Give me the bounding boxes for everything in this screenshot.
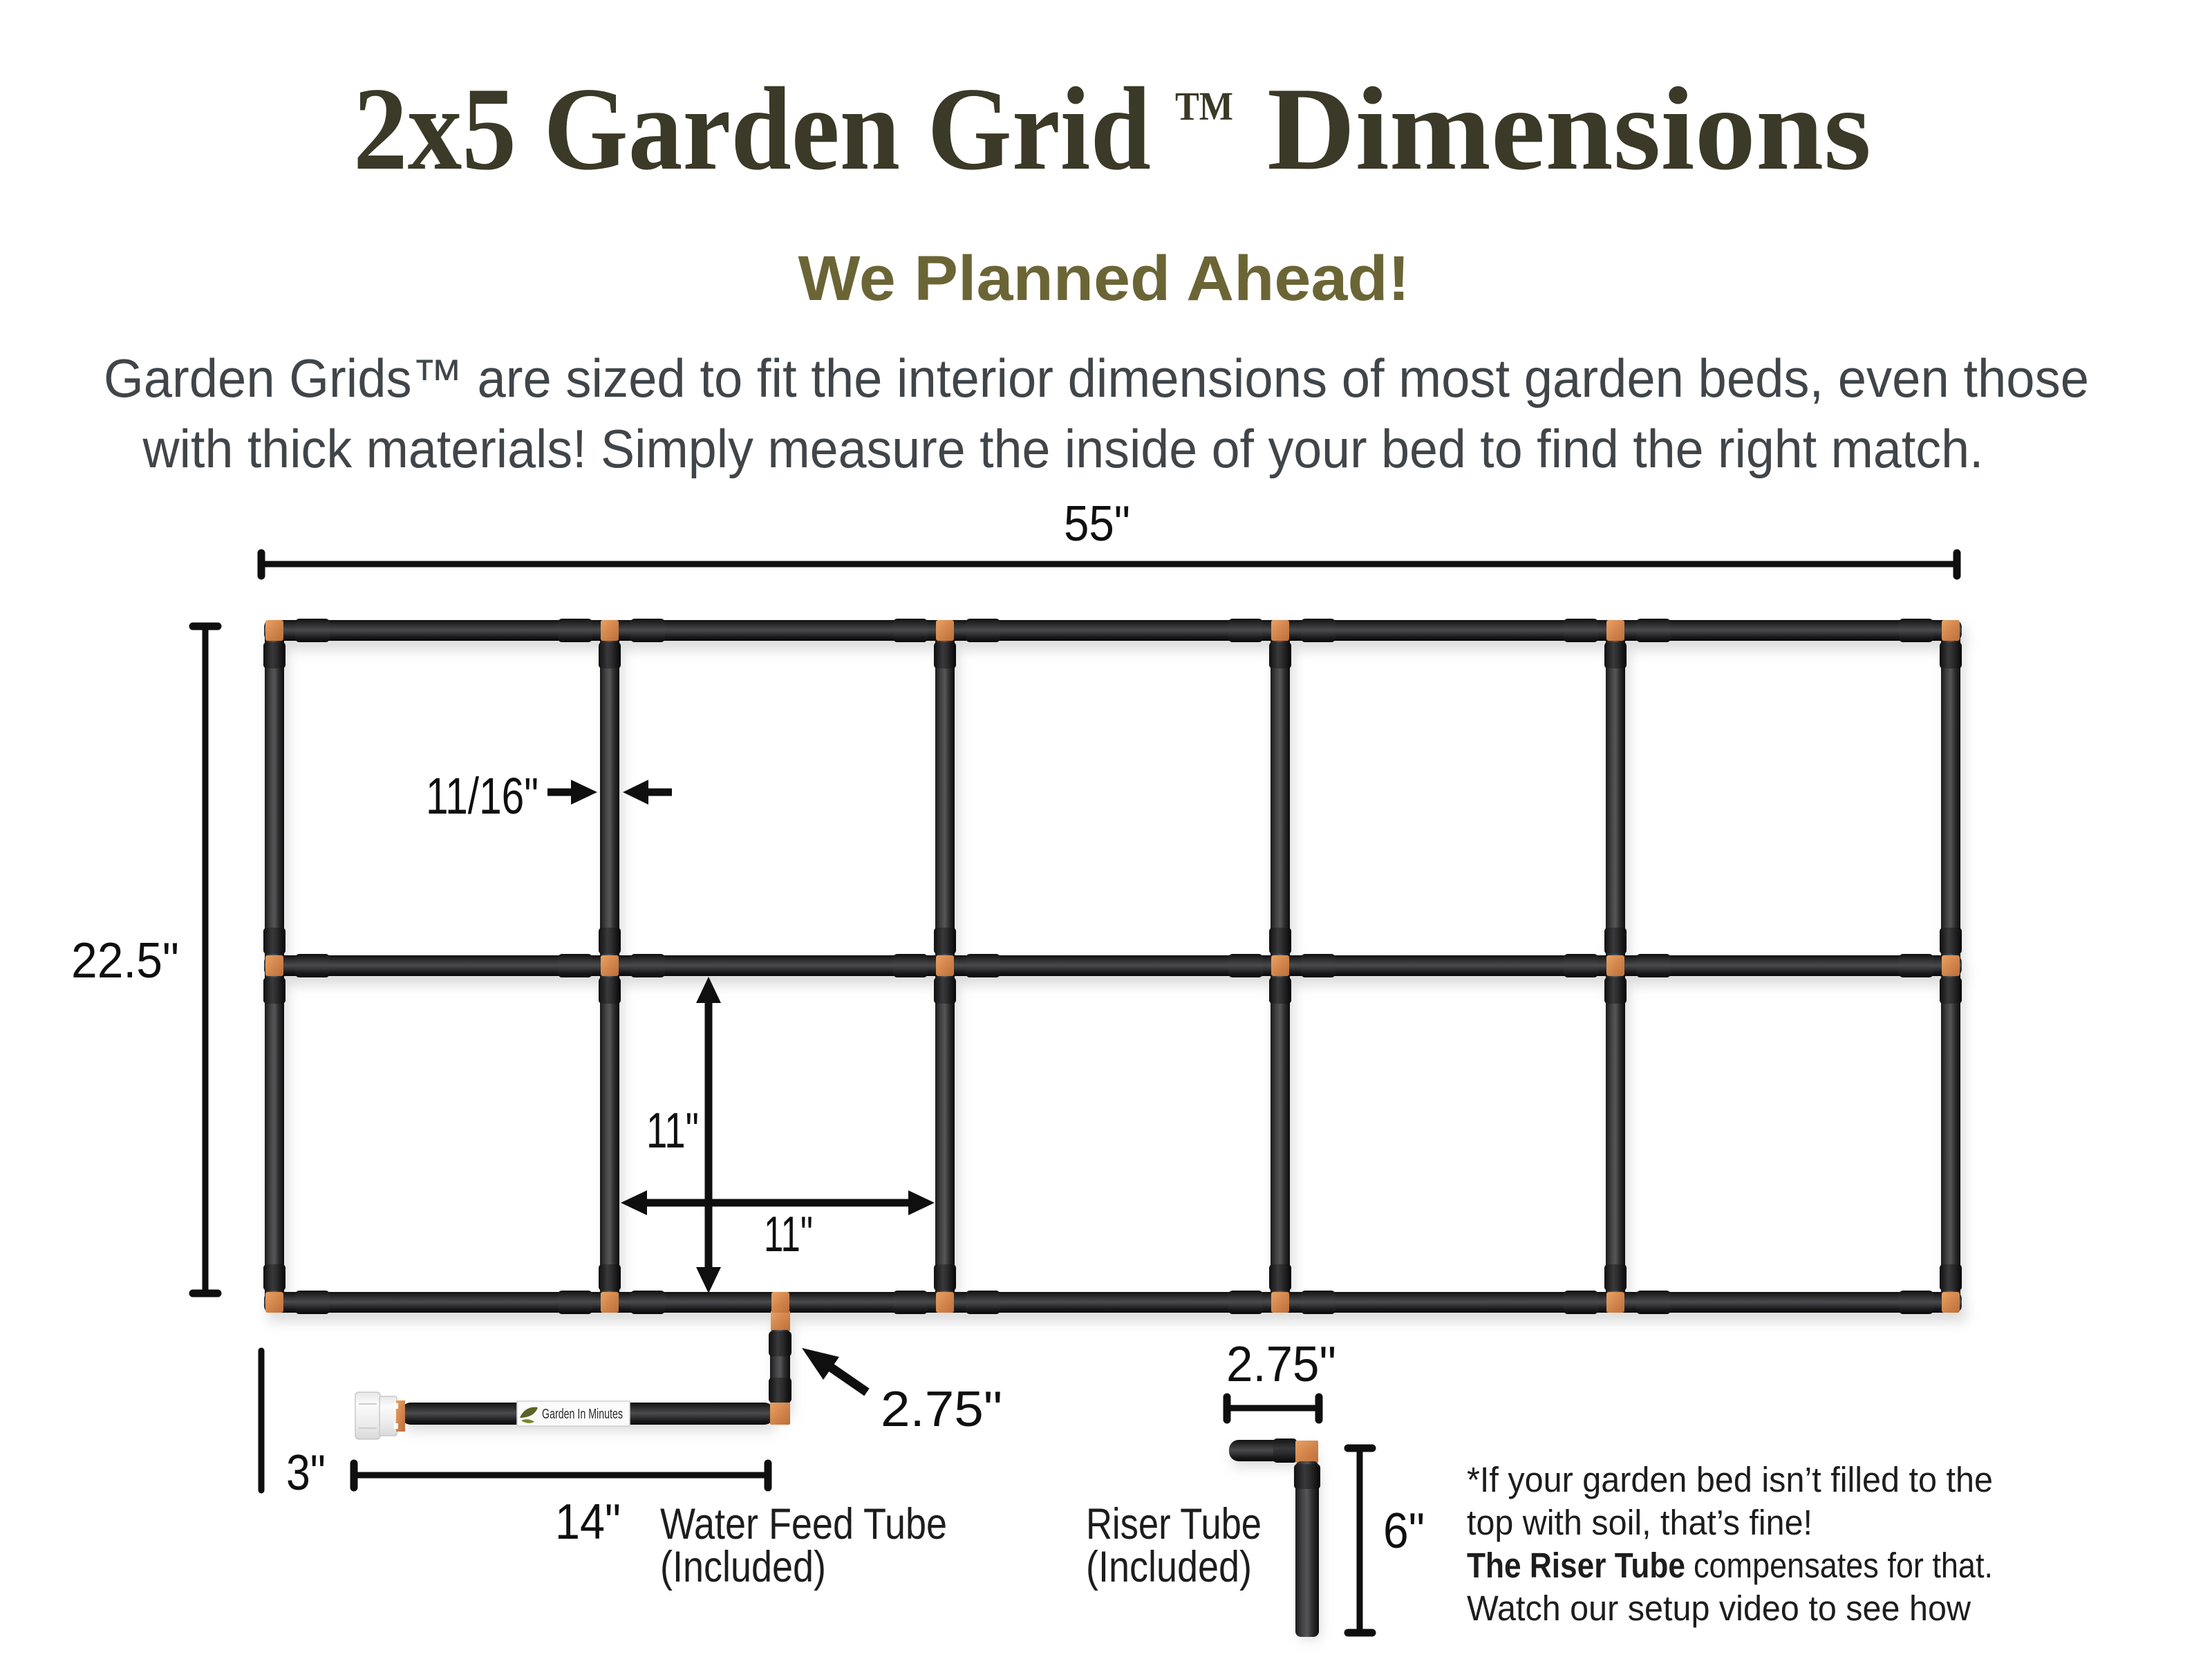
svg-text:The Riser Tube: The Riser Tube xyxy=(1467,1546,1685,1585)
svg-text:22.5": 22.5" xyxy=(71,933,179,988)
svg-text:(Included): (Included) xyxy=(660,1543,826,1591)
svg-text:55": 55" xyxy=(1064,496,1130,552)
svg-text:Watch our setup video to see h: Watch our setup video to see how xyxy=(1467,1588,1971,1628)
svg-text:14": 14" xyxy=(555,1494,621,1550)
svg-text:*If your garden bed isn’t fill: *If your garden bed isn’t filled to the xyxy=(1467,1460,1993,1499)
svg-text:Water Feed Tube: Water Feed Tube xyxy=(660,1500,947,1548)
svg-text:TM: TM xyxy=(1175,84,1233,129)
svg-text:11": 11" xyxy=(764,1207,813,1262)
svg-text:2x5 Garden Grid: 2x5 Garden Grid xyxy=(353,64,1151,195)
svg-text:top with soil, that’s fine!: top with soil, that’s fine! xyxy=(1467,1503,1812,1542)
svg-text:11": 11" xyxy=(646,1103,699,1159)
svg-text:2.75": 2.75" xyxy=(1226,1337,1336,1392)
svg-text:6": 6" xyxy=(1383,1503,1425,1559)
svg-text:Garden Grids™ are sized to fit: Garden Grids™ are sized to fit the inter… xyxy=(104,348,2089,409)
svg-text:3": 3" xyxy=(286,1445,326,1501)
svg-text:2.75": 2.75" xyxy=(881,1382,1002,1437)
svg-text:compensates for that.: compensates for that. xyxy=(1694,1546,1993,1585)
svg-text:Garden In Minutes: Garden In Minutes xyxy=(542,1407,623,1422)
svg-text:Riser Tube: Riser Tube xyxy=(1086,1500,1262,1548)
svg-text:Dimensions: Dimensions xyxy=(1267,64,1871,195)
svg-text:11/16": 11/16" xyxy=(426,767,538,825)
svg-text:We Planned Ahead!: We Planned Ahead! xyxy=(798,243,1410,314)
svg-text:(Included): (Included) xyxy=(1086,1543,1252,1591)
svg-text:with thick materials! Simply m: with thick materials! Simply measure the… xyxy=(142,418,1984,479)
